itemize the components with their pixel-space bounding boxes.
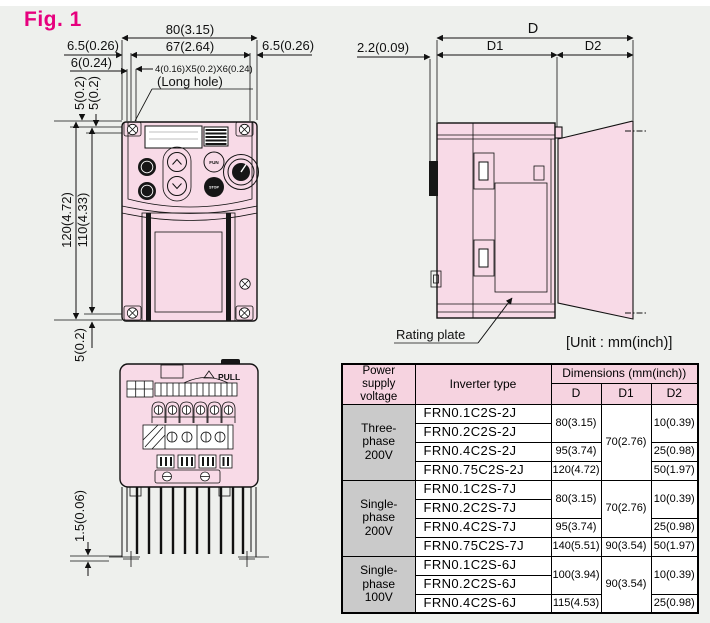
dim-depth-front: D1: [487, 38, 504, 53]
terminal-block: [143, 425, 233, 449]
inverter-type-cell: FRN0.1C2S-6J: [415, 556, 551, 575]
dim-d-cell: 80(3.15): [551, 480, 601, 518]
dim-bottom-offset: 5(0.2): [72, 328, 87, 362]
dim-d2-cell: 10(0.39): [651, 556, 698, 594]
dim-d2-cell: 10(0.39): [651, 404, 698, 442]
manual-page: Fig. 1 80(3.15) 67(2.64) 6.5(0.26) 6.5(0…: [0, 0, 710, 623]
dim-d2-cell: 10(0.39): [651, 480, 698, 518]
dim-top-offset-b: 5(0.2): [86, 76, 101, 110]
dim-hook: 2.2(0.09): [357, 40, 409, 55]
dim-top-offset-a: 5(0.2): [72, 76, 87, 110]
reset-key-icon: [138, 182, 156, 200]
voltage-group-cell: Single-phase 100V: [342, 556, 415, 613]
led-display: [145, 126, 202, 148]
dim-edge-6: 6(0.24): [71, 55, 112, 70]
inverter-type-cell: FRN0.1C2S-2J: [415, 404, 551, 423]
header-power-supply: Power supply voltage: [342, 364, 415, 404]
dim-d2-cell: 50(1.97): [651, 537, 698, 556]
voltage-group-cell: Single-phase 200V: [342, 480, 415, 556]
dim-height-holes: 110(4.33): [75, 193, 90, 248]
inverter-type-cell: FRN0.75C2S-7J: [415, 537, 551, 556]
dim-depth-fin: D2: [585, 38, 602, 53]
dim-d1-cell: 90(3.54): [601, 537, 651, 556]
dim-width-holes: 67(2.64): [166, 39, 214, 54]
inverter-type-cell: FRN0.2C2S-2J: [415, 423, 551, 442]
dim-depth-total: D: [528, 21, 538, 37]
dim-d2-cell: 25(0.98): [651, 442, 698, 461]
mounting-hook-icon: [429, 161, 438, 196]
dim-d1-cell: 90(3.54): [601, 556, 651, 613]
heat-sink-fins: [109, 487, 269, 567]
long-hole-note: (Long hole): [157, 74, 223, 89]
vent-slits-icon: [204, 127, 228, 146]
dim-d2-cell: 25(0.98): [651, 594, 698, 613]
dim-fin-base: 1.5(0.06): [72, 490, 87, 542]
inverter-type-cell: FRN0.2C2S-7J: [415, 499, 551, 518]
header-d: D: [551, 383, 601, 404]
keyed-blocks: [157, 455, 232, 468]
voltage-group-cell: Three-phase 200V: [342, 404, 415, 480]
dim-d-cell: 115(4.53): [551, 594, 601, 613]
heat-sink-side: [558, 121, 633, 319]
dim-d-cell: 140(5.51): [551, 537, 601, 556]
svg-text:STOP: STOP: [209, 185, 219, 189]
dim-d-cell: 120(4.72): [551, 461, 601, 480]
dim-d2-cell: 50(1.97): [651, 461, 698, 480]
svg-text:FUN: FUN: [209, 160, 219, 165]
dimensions-table: Power supply voltage Inverter type Dimen…: [341, 363, 699, 614]
inverter-type-cell: FRN0.1C2S-7J: [415, 480, 551, 499]
base-plate: [155, 470, 220, 483]
table-row: Single-phase 100V FRN0.1C2S-6J 100(3.94)…: [342, 556, 698, 575]
dim-d1-cell: 70(2.76): [601, 480, 651, 537]
dim-d-cell: 80(3.15): [551, 404, 601, 442]
inverter-type-cell: FRN0.2C2S-6J: [415, 575, 551, 594]
dim-width-total: 80(3.15): [166, 22, 214, 37]
inverter-type-cell: FRN0.4C2S-7J: [415, 518, 551, 537]
header-inverter-type: Inverter type: [415, 364, 551, 404]
dim-height-total: 120(4.72): [59, 192, 74, 248]
header-d2: D2: [651, 383, 698, 404]
dim-d1-cell: 70(2.76): [601, 404, 651, 480]
program-key-icon: [138, 158, 156, 176]
dim-d-cell: 95(3.74): [551, 442, 601, 461]
dim-d-cell: 95(3.74): [551, 518, 601, 537]
bottom-view-drawing: PULL: [70, 359, 269, 576]
dim-edge-left: 6.5(0.26): [67, 38, 119, 53]
inverter-type-cell: FRN0.75C2S-2J: [415, 461, 551, 480]
rating-plate-label: Rating plate: [396, 327, 465, 342]
header-dimensions: Dimensions (mm(inch)): [551, 364, 698, 383]
front-view-drawing: 80(3.15) 67(2.64) 6.5(0.26) 6.5(0.26) 6(…: [54, 22, 314, 362]
stop-key: STOP: [204, 177, 224, 197]
inverter-side-body: [437, 123, 555, 318]
header-d1: D1: [601, 383, 651, 404]
table-row: Three-phase 200V FRN0.1C2S-2J 80(3.15) 7…: [342, 404, 698, 423]
dim-d-cell: 100(3.94): [551, 556, 601, 594]
inverter-type-cell: FRN0.4C2S-2J: [415, 442, 551, 461]
dim-edge-right: 6.5(0.26): [262, 38, 314, 53]
unit-note: [Unit : mm(inch)]: [566, 335, 672, 351]
dim-d2-cell: 25(0.98): [651, 518, 698, 537]
inverter-type-cell: FRN0.4C2S-6J: [415, 594, 551, 613]
table-row: Single-phase 200V FRN0.1C2S-7J 80(3.15) …: [342, 480, 698, 499]
side-view-drawing: D D1 D2 2.2(0.09): [357, 21, 672, 351]
